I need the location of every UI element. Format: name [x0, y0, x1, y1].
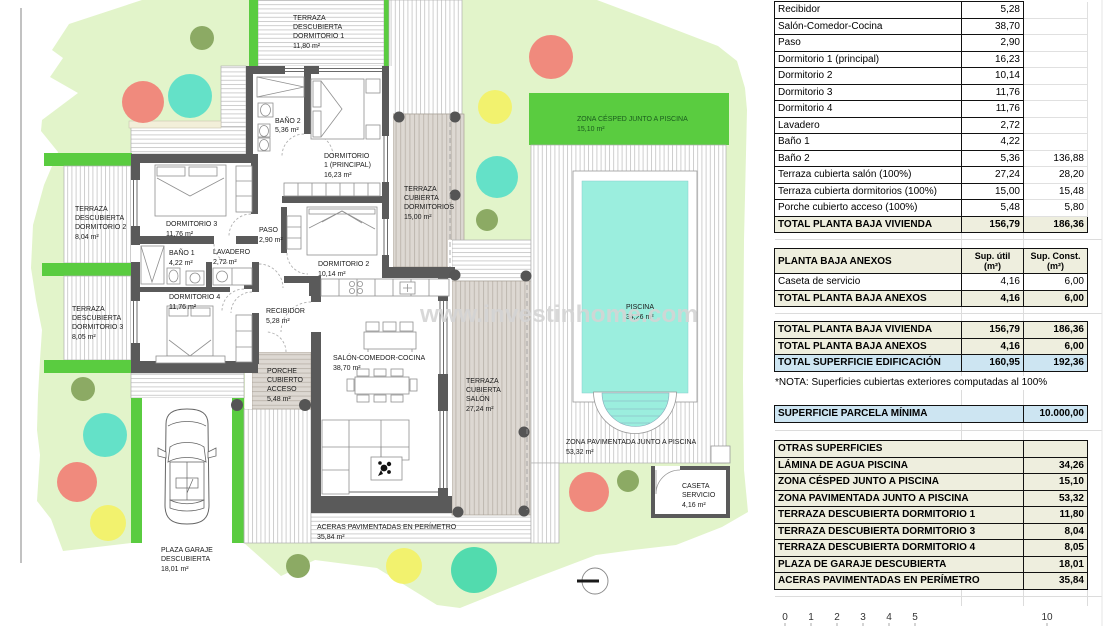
svg-text:1 (PRINCIPAL): 1 (PRINCIPAL) — [324, 162, 371, 169]
svg-text:TERRAZA: TERRAZA — [293, 15, 326, 22]
svg-text:DORMITORIO 2: DORMITORIO 2 — [318, 261, 369, 268]
svg-text:CUBIERTA: CUBIERTA — [404, 195, 439, 202]
svg-text:5: 5 — [912, 612, 918, 623]
svg-text:5,28 m²: 5,28 m² — [266, 318, 290, 325]
svg-text:DESCUBIERTA: DESCUBIERTA — [161, 556, 210, 563]
svg-text:BAÑO 1: BAÑO 1 — [169, 248, 195, 257]
svg-text:ZONA PAVIMENTADA JUNTO A PISCI: ZONA PAVIMENTADA JUNTO A PISCINA — [566, 439, 697, 446]
svg-text:BAÑO 2: BAÑO 2 — [275, 116, 301, 125]
svg-text:DORMITORIO 3: DORMITORIO 3 — [72, 324, 123, 331]
svg-text:ZONA CÉSPED JUNTO A PISCINA: ZONA CÉSPED JUNTO A PISCINA — [577, 114, 688, 123]
svg-text:5,48 m²: 5,48 m² — [267, 396, 291, 403]
svg-text:www.investinhome.com: www.investinhome.com — [419, 301, 698, 328]
svg-text:RECIBIDOR: RECIBIDOR — [266, 308, 305, 315]
svg-text:18,01 m²: 18,01 m² — [161, 566, 189, 573]
svg-text:SALÓN-COMEDOR-COCINA: SALÓN-COMEDOR-COCINA — [333, 353, 426, 362]
svg-text:CUBIERTO: CUBIERTO — [267, 377, 303, 384]
svg-text:4,22 m²: 4,22 m² — [169, 260, 193, 267]
svg-text:2,90 m²: 2,90 m² — [259, 237, 283, 244]
svg-text:DESCUBIERTA: DESCUBIERTA — [72, 315, 121, 322]
svg-text:3: 3 — [860, 612, 866, 623]
svg-text:16,23 m²: 16,23 m² — [324, 172, 352, 179]
svg-text:0: 0 — [782, 612, 788, 623]
svg-text:11,76 m²: 11,76 m² — [166, 231, 194, 238]
svg-text:35,84 m²: 35,84 m² — [317, 534, 345, 541]
svg-text:11,76 m²: 11,76 m² — [169, 304, 197, 311]
svg-text:DESCUBIERTA: DESCUBIERTA — [75, 215, 124, 222]
svg-text:TERRAZA: TERRAZA — [72, 306, 105, 313]
svg-text:CASETA: CASETA — [682, 483, 710, 490]
svg-text:11,80 m²: 11,80 m² — [293, 43, 321, 50]
svg-text:TERRAZA: TERRAZA — [404, 186, 437, 193]
svg-text:27,24 m²: 27,24 m² — [466, 406, 494, 413]
svg-text:DORMITORIOS: DORMITORIOS — [404, 204, 454, 211]
svg-text:SERVICIO: SERVICIO — [682, 492, 716, 499]
svg-text:8,04 m²: 8,04 m² — [75, 234, 99, 241]
svg-text:DORMITORIO: DORMITORIO — [324, 153, 370, 160]
svg-text:5,36 m²: 5,36 m² — [275, 127, 299, 134]
svg-text:15,00 m²: 15,00 m² — [404, 214, 432, 221]
svg-text:53,32 m²: 53,32 m² — [566, 449, 594, 456]
svg-text:4,16 m²: 4,16 m² — [682, 502, 706, 509]
svg-text:DORMITORIO 2: DORMITORIO 2 — [75, 224, 126, 231]
svg-text:PLAZA GARAJE: PLAZA GARAJE — [161, 547, 213, 554]
svg-text:DORMITORIO 3: DORMITORIO 3 — [166, 221, 217, 228]
svg-text:PORCHE: PORCHE — [267, 368, 297, 375]
svg-text:15,10 m²: 15,10 m² — [577, 126, 605, 133]
svg-text:DORMITORIO 1: DORMITORIO 1 — [293, 33, 344, 40]
svg-text:TERRAZA: TERRAZA — [466, 378, 499, 385]
svg-text:10: 10 — [1041, 612, 1053, 623]
svg-text:DORMITORIO 4: DORMITORIO 4 — [169, 294, 220, 301]
svg-text:10,14 m²: 10,14 m² — [318, 271, 346, 278]
svg-text:CUBIERTA: CUBIERTA — [466, 387, 501, 394]
svg-text:TERRAZA: TERRAZA — [75, 206, 108, 213]
svg-text:SALÓN: SALÓN — [466, 394, 490, 403]
svg-text:2: 2 — [834, 612, 840, 623]
svg-text:LAVADERO: LAVADERO — [213, 249, 251, 256]
svg-text:ACERAS PAVIMENTADAS EN PERÍMET: ACERAS PAVIMENTADAS EN PERÍMETRO — [317, 522, 457, 531]
svg-text:ACCESO: ACCESO — [267, 386, 297, 393]
svg-text:2,72 m²: 2,72 m² — [213, 259, 237, 266]
svg-text:1: 1 — [808, 612, 814, 623]
svg-text:4: 4 — [886, 612, 892, 623]
svg-text:DESCUBIERTA: DESCUBIERTA — [293, 24, 342, 31]
svg-text:8,05 m²: 8,05 m² — [72, 334, 96, 341]
svg-text:PASO: PASO — [259, 227, 278, 234]
svg-text:38,70 m²: 38,70 m² — [333, 365, 361, 372]
